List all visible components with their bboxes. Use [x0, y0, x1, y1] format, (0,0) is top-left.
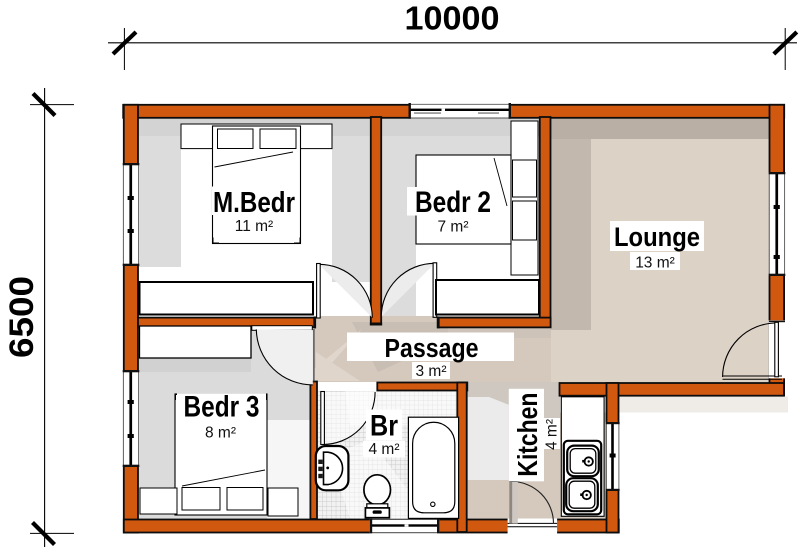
svg-text:Bedr 3: Bedr 3: [184, 390, 260, 423]
svg-text:M.Bedr: M.Bedr: [213, 187, 295, 219]
svg-text:3 m²: 3 m²: [416, 363, 447, 380]
svg-text:11 m²: 11 m²: [235, 218, 273, 235]
svg-text:8 m²: 8 m²: [205, 425, 236, 442]
svg-text:Lounge: Lounge: [614, 222, 700, 252]
svg-text:Kitchen: Kitchen: [512, 393, 543, 477]
svg-text:4 m²: 4 m²: [369, 441, 400, 458]
svg-text:7 m²: 7 m²: [438, 219, 469, 236]
svg-text:13 m²: 13 m²: [635, 255, 675, 272]
svg-text:Passage: Passage: [385, 335, 479, 363]
svg-text:Br: Br: [370, 410, 398, 443]
svg-text:10000: 10000: [405, 0, 500, 37]
svg-text:4 m²: 4 m²: [544, 419, 561, 450]
svg-text:6500: 6500: [3, 276, 41, 358]
svg-text:Bedr 2: Bedr 2: [415, 186, 491, 219]
